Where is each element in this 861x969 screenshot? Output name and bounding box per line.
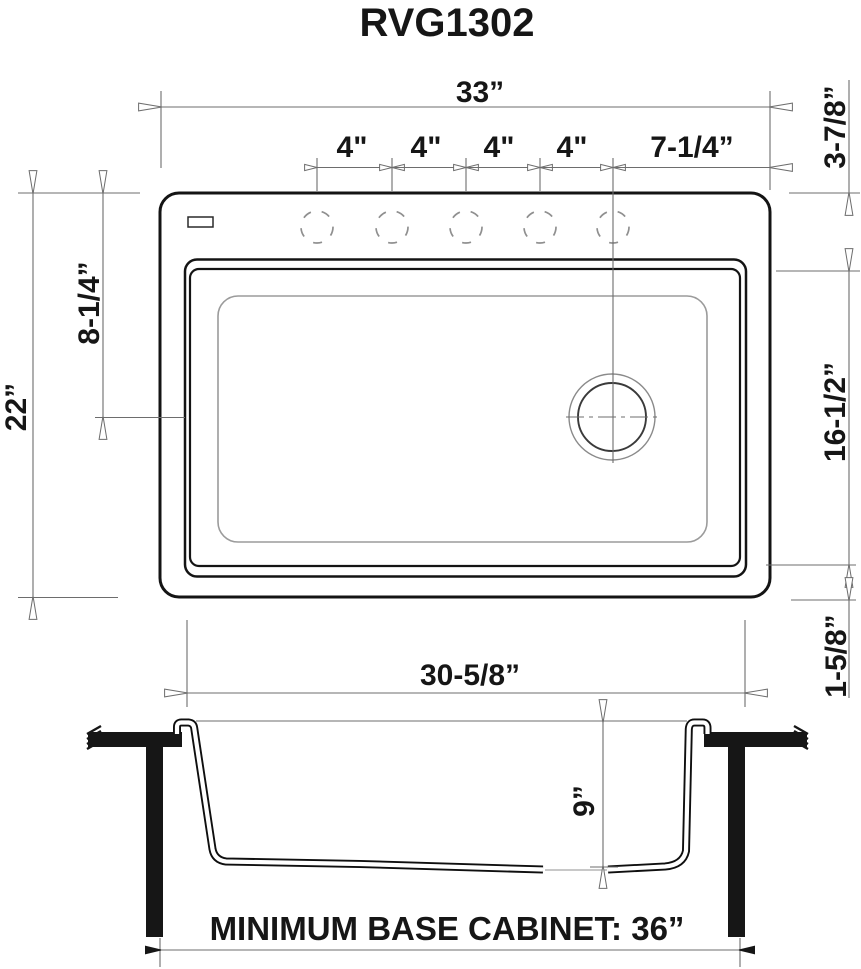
cabinet-note: MINIMUM BASE CABINET: 36” (210, 910, 685, 947)
bowl-rim-outer (185, 260, 746, 577)
dim-label-spacing-4: 4" (557, 131, 588, 164)
sink-profile-right-outline (608, 723, 708, 870)
dim-label-right-hole-offset: 7-1/4” (650, 131, 733, 164)
dim-label-bowl-width: 30-5/8” (420, 659, 520, 692)
dim-label-bowl-front-back: 16-1/2” (819, 362, 852, 462)
dim-label-overall-depth: 22” (0, 383, 33, 431)
dim-label-spacing-3: 4" (484, 131, 515, 164)
cabinet-side-right (728, 747, 745, 937)
countertop-left (88, 732, 182, 747)
sink-outline (160, 193, 770, 597)
dim-label-spacing-2: 4" (411, 131, 442, 164)
top-view: 33” 4" 4" 4" 4" 7-1/4” 22” 8-1/4” 3-7/8”… (0, 76, 860, 707)
section-view: 9” MINIMUM BASE CABINET: 36” (87, 721, 808, 967)
bowl-rim-inner (190, 269, 740, 566)
sink-profile-left-outline (177, 723, 543, 870)
bowl-floor (218, 296, 707, 542)
faucet-hole-1 (301, 211, 333, 243)
drawing-title: RVG1302 (360, 1, 535, 45)
faucet-hole-3 (450, 211, 482, 243)
spec-sheet-page: RVG1302 33” 4" (0, 0, 861, 969)
cabinet-side-left (146, 747, 163, 937)
faucet-hole-2 (376, 211, 408, 243)
dim-label-overall-width: 33” (456, 76, 504, 109)
dim-label-back-deck: 3-7/8” (819, 85, 852, 168)
sink-profile-left-core (177, 723, 543, 870)
dim-label-drain-from-back: 8-1/4” (73, 261, 106, 344)
faucet-hole-4 (524, 211, 556, 243)
sink-profile-right-core (608, 723, 708, 870)
dim-label-front-rim: 1-5/8” (820, 614, 853, 697)
technical-drawing: RVG1302 33” 4" (0, 0, 861, 969)
dim-label-bowl-depth: 9” (568, 785, 601, 817)
countertop-right (704, 732, 807, 747)
brand-logo-mark (188, 217, 213, 227)
dim-label-spacing-1: 4" (337, 131, 368, 164)
